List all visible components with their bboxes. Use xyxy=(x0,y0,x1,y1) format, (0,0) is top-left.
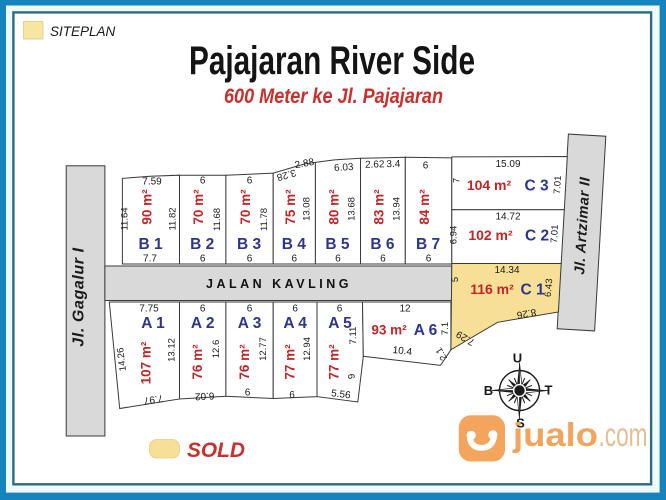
svg-text:6: 6 xyxy=(245,388,251,399)
svg-text:B 5: B 5 xyxy=(325,236,350,253)
svg-text:6: 6 xyxy=(247,254,253,265)
svg-text:B: B xyxy=(484,383,493,398)
svg-text:B 7: B 7 xyxy=(416,236,440,253)
svg-text:12.6: 12.6 xyxy=(211,340,222,359)
svg-text:83 m²: 83 m² xyxy=(371,189,386,225)
svg-text:7.7: 7.7 xyxy=(143,254,157,265)
svg-text:13.94: 13.94 xyxy=(391,197,402,221)
svg-text:B 3: B 3 xyxy=(237,236,262,253)
svg-text:13.68: 13.68 xyxy=(347,197,358,221)
svg-text:77 m²: 77 m² xyxy=(327,344,342,380)
svg-text:C 2: C 2 xyxy=(525,228,549,245)
svg-text:76 m²: 76 m² xyxy=(237,344,252,380)
svg-text:11.78: 11.78 xyxy=(259,208,270,231)
svg-text:6: 6 xyxy=(247,176,253,187)
svg-text:B 6: B 6 xyxy=(370,236,395,253)
svg-text:6: 6 xyxy=(200,254,206,265)
svg-text:11.64: 11.64 xyxy=(120,207,131,230)
svg-text:93 m²: 93 m² xyxy=(371,323,407,338)
svg-text:6.02: 6.02 xyxy=(194,389,214,401)
svg-text:U: U xyxy=(513,351,522,366)
svg-text:SITEPLAN: SITEPLAN xyxy=(50,24,116,39)
svg-text:B 1: B 1 xyxy=(138,236,163,253)
svg-text:75 m²: 75 m² xyxy=(283,189,298,225)
svg-text:6: 6 xyxy=(292,254,298,265)
svg-text:80 m²: 80 m² xyxy=(326,189,341,225)
svg-text:11.68: 11.68 xyxy=(212,208,223,231)
svg-text:600 Meter ke Jl. Pajajaran: 600 Meter ke Jl. Pajajaran xyxy=(224,85,443,108)
svg-text:A 3: A 3 xyxy=(238,315,262,332)
svg-text:6: 6 xyxy=(289,390,295,401)
svg-text:104 m²: 104 m² xyxy=(467,177,512,193)
svg-text:7.1: 7.1 xyxy=(440,322,451,335)
svg-text:C 3: C 3 xyxy=(524,178,549,195)
svg-text:A 6: A 6 xyxy=(414,322,438,339)
svg-text:6: 6 xyxy=(380,254,386,265)
svg-text:6: 6 xyxy=(426,254,432,265)
svg-text:C 1: C 1 xyxy=(520,282,545,299)
svg-text:Pajajaran River Side: Pajajaran River Side xyxy=(189,39,475,83)
svg-text:107 m²: 107 m² xyxy=(139,341,154,384)
svg-text:7.11: 7.11 xyxy=(348,327,359,345)
svg-text:70 m²: 70 m² xyxy=(238,189,253,225)
svg-text:Jl. Gagalur I: Jl. Gagalur I xyxy=(71,247,88,346)
svg-text:13.12: 13.12 xyxy=(167,338,178,362)
svg-text:A 4: A 4 xyxy=(283,315,307,332)
svg-text:6: 6 xyxy=(247,304,253,315)
svg-text:6.94: 6.94 xyxy=(449,226,460,245)
svg-text:5: 5 xyxy=(450,277,461,282)
svg-text:3.4: 3.4 xyxy=(386,159,401,170)
svg-text:6: 6 xyxy=(423,161,429,172)
svg-text:7.01: 7.01 xyxy=(549,224,561,243)
svg-text:14.72: 14.72 xyxy=(495,212,520,223)
svg-text:6: 6 xyxy=(292,304,298,315)
svg-text:7.01: 7.01 xyxy=(552,175,564,194)
svg-text:T: T xyxy=(545,383,553,398)
svg-text:JALAN KAVLING: JALAN KAVLING xyxy=(206,277,352,291)
svg-text:6: 6 xyxy=(335,254,341,265)
svg-text:2.62: 2.62 xyxy=(365,159,385,171)
svg-text:12.94: 12.94 xyxy=(302,337,313,361)
svg-text:7.59: 7.59 xyxy=(142,177,162,188)
svg-text:12.77: 12.77 xyxy=(258,337,269,361)
svg-text:11.82: 11.82 xyxy=(168,207,179,230)
svg-text:.com: .com xyxy=(599,416,648,453)
svg-text:6.03: 6.03 xyxy=(334,162,355,174)
svg-text:13.08: 13.08 xyxy=(301,197,312,221)
svg-text:7.75: 7.75 xyxy=(139,304,159,315)
svg-text:6.43: 6.43 xyxy=(543,278,556,297)
svg-text:6: 6 xyxy=(200,176,206,187)
svg-text:10.4: 10.4 xyxy=(392,345,413,358)
svg-text:84 m²: 84 m² xyxy=(417,189,432,225)
svg-text:76 m²: 76 m² xyxy=(190,344,205,380)
svg-text:90 m²: 90 m² xyxy=(140,189,155,225)
svg-text:6: 6 xyxy=(200,304,206,315)
svg-text:7: 7 xyxy=(452,178,463,183)
svg-text:12: 12 xyxy=(399,304,411,315)
svg-text:A 1: A 1 xyxy=(141,315,165,332)
svg-text:jualo: jualo xyxy=(512,416,598,453)
svg-text:B 4: B 4 xyxy=(282,236,307,253)
svg-text:102 m²: 102 m² xyxy=(468,227,513,243)
svg-text:70 m²: 70 m² xyxy=(191,189,206,225)
svg-text:SOLD: SOLD xyxy=(187,439,245,462)
svg-text:116 m²: 116 m² xyxy=(470,281,514,297)
svg-text:15.09: 15.09 xyxy=(495,159,520,170)
svg-text:A 2: A 2 xyxy=(191,315,215,332)
svg-text:77 m²: 77 m² xyxy=(283,344,298,380)
svg-text:14.34: 14.34 xyxy=(494,265,519,276)
svg-text:6: 6 xyxy=(337,304,343,315)
svg-text:B 2: B 2 xyxy=(190,236,214,253)
